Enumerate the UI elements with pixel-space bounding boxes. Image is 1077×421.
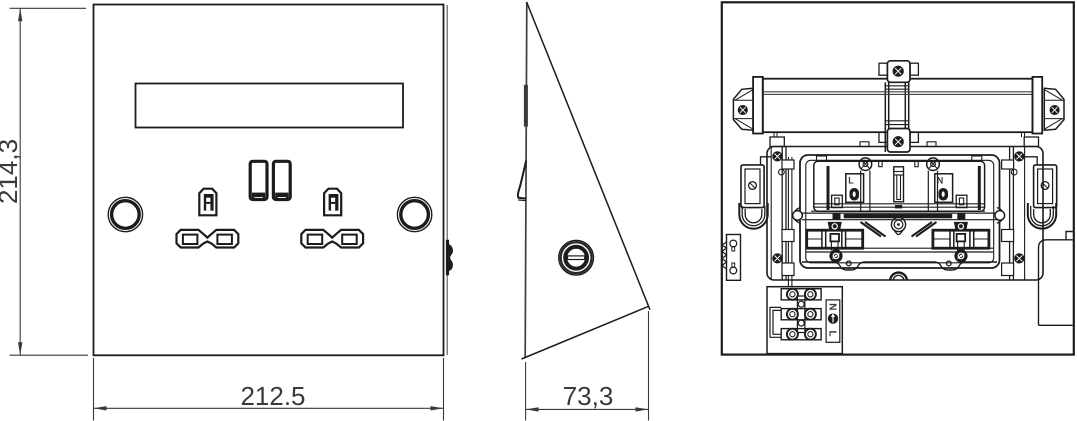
svg-text:L: L — [848, 176, 854, 186]
svg-text:214,3: 214,3 — [0, 139, 23, 204]
svg-text:212.5: 212.5 — [240, 381, 305, 411]
svg-text:73,3: 73,3 — [563, 381, 614, 411]
svg-text:L: L — [827, 330, 838, 336]
svg-text:N: N — [827, 303, 838, 310]
